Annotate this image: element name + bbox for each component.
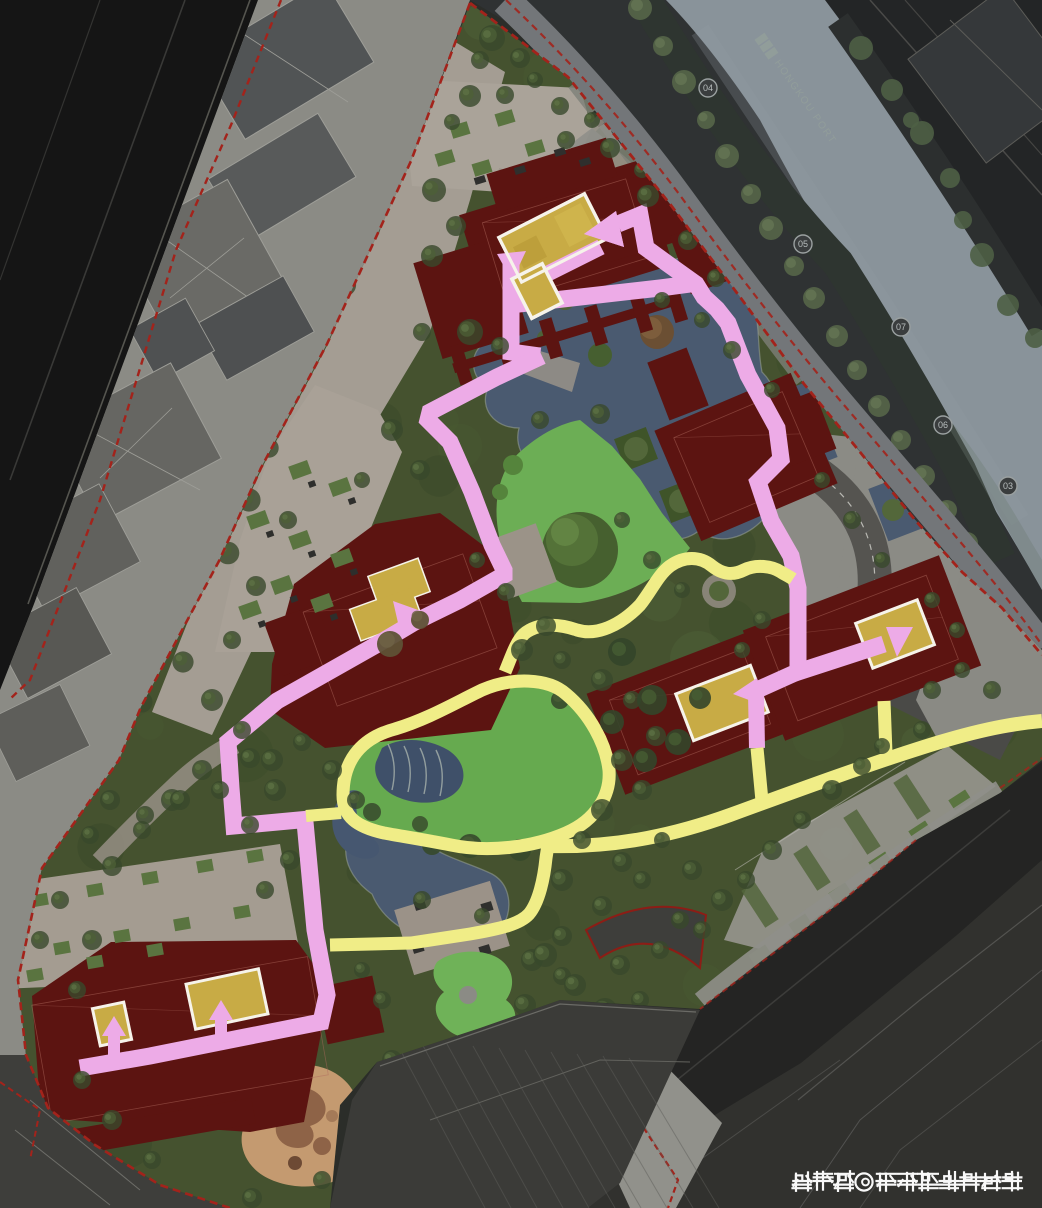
svg-text:04: 04 [703, 83, 713, 93]
svg-text:05: 05 [798, 239, 808, 249]
svg-text:06: 06 [938, 420, 948, 430]
svg-text:07: 07 [896, 322, 906, 332]
svg-text:03: 03 [1003, 481, 1013, 491]
